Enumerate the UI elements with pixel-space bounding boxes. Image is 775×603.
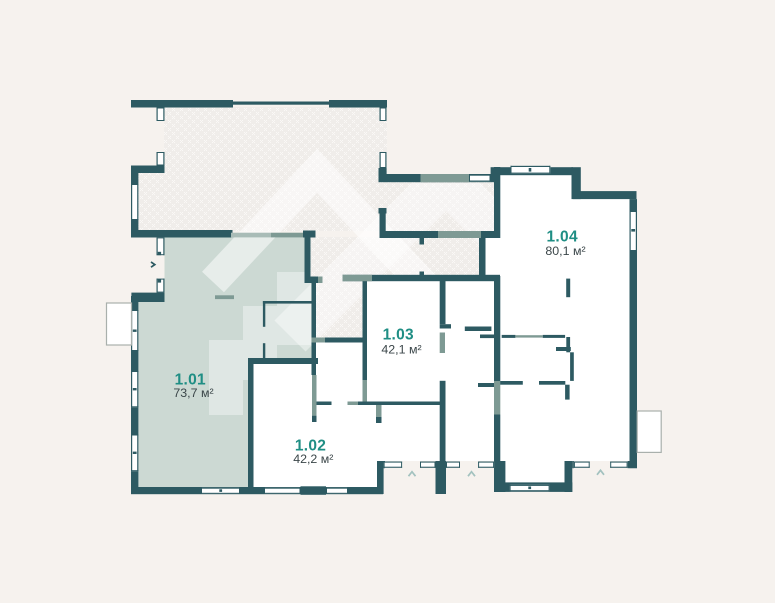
svg-text:1.03: 1.03	[383, 327, 414, 344]
svg-text:42,1 м²: 42,1 м²	[381, 343, 421, 357]
svg-text:80,1 м²: 80,1 м²	[545, 244, 585, 258]
svg-text:42,2 м²: 42,2 м²	[293, 452, 333, 466]
svg-text:73,7 м²: 73,7 м²	[173, 386, 213, 400]
